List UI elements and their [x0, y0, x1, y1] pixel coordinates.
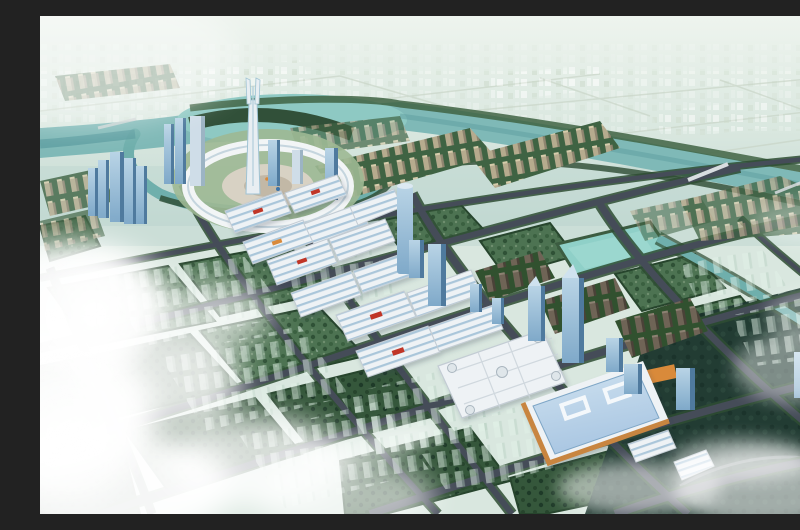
rendering-canvas: Aerial rendering of a planned riverside …	[40, 16, 800, 514]
city-masterplan-rendering: Aerial rendering of a planned riverside …	[40, 16, 800, 514]
landmark-spire: Twin-pronged landmark spire	[246, 78, 260, 194]
